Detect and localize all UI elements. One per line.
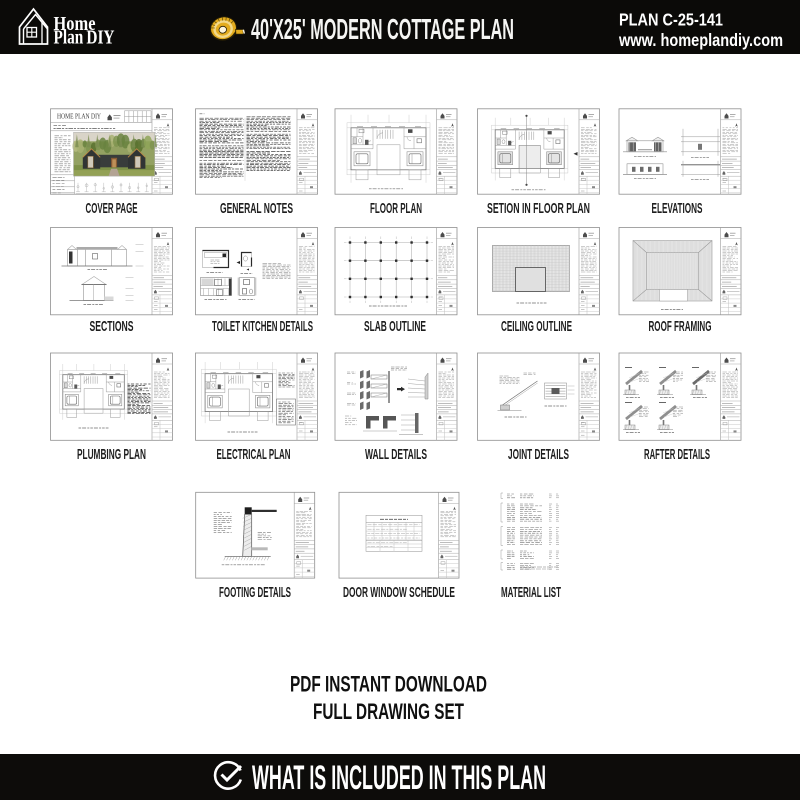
svg-text:TOILET KITCHEN DETAILS: TOILET KITCHEN DETAILS bbox=[212, 318, 313, 335]
svg-text:Plan DIY: Plan DIY bbox=[54, 28, 115, 49]
svg-text:www. homeplandiy.com: www. homeplandiy.com bbox=[618, 30, 783, 50]
svg-text:GENERAL NOTES: GENERAL NOTES bbox=[220, 200, 293, 217]
svg-text:DOOR WINDOW SCHEDULE: DOOR WINDOW SCHEDULE bbox=[343, 584, 455, 601]
svg-text:CEILING OUTLINE: CEILING OUTLINE bbox=[501, 318, 572, 335]
svg-text:SECTIONS: SECTIONS bbox=[90, 318, 134, 335]
svg-text:PDF INSTANT DOWNLOAD: PDF INSTANT DOWNLOAD bbox=[290, 672, 487, 697]
svg-text:FOOTING DETAILS: FOOTING DETAILS bbox=[219, 584, 291, 601]
svg-text:FLOOR PLAN: FLOOR PLAN bbox=[370, 200, 422, 217]
svg-text:ELEVATIONS: ELEVATIONS bbox=[652, 200, 703, 217]
svg-text:RAFTER DETAILS: RAFTER DETAILS bbox=[644, 446, 710, 463]
svg-text:PLAN C-25-141: PLAN C-25-141 bbox=[619, 10, 723, 30]
svg-text:WHAT IS INCLUDED IN THIS PLAN: WHAT IS INCLUDED IN THIS PLAN bbox=[252, 759, 546, 797]
svg-text:COVER PAGE: COVER PAGE bbox=[86, 200, 138, 217]
svg-text:MATERIAL LIST: MATERIAL LIST bbox=[501, 584, 561, 601]
svg-text:SLAB OUTLINE: SLAB OUTLINE bbox=[364, 318, 426, 335]
svg-text:HOME PLAN DIY: HOME PLAN DIY bbox=[57, 113, 101, 121]
svg-text:PLUMBING PLAN: PLUMBING PLAN bbox=[77, 446, 146, 463]
svg-text:ELECTRICAL PLAN: ELECTRICAL PLAN bbox=[217, 446, 291, 463]
svg-text:FULL DRAWING SET: FULL DRAWING SET bbox=[313, 699, 464, 724]
svg-text:40'X25' MODERN COTTAGE PLAN: 40'X25' MODERN COTTAGE PLAN bbox=[251, 14, 514, 46]
svg-text:JOINT DETAILS: JOINT DETAILS bbox=[508, 446, 569, 463]
svg-text:WALL DETAILS: WALL DETAILS bbox=[365, 446, 427, 463]
svg-text:ROOF FRAMING: ROOF FRAMING bbox=[649, 318, 712, 335]
svg-text:SETION IN FLOOR PLAN: SETION IN FLOOR PLAN bbox=[487, 200, 590, 217]
